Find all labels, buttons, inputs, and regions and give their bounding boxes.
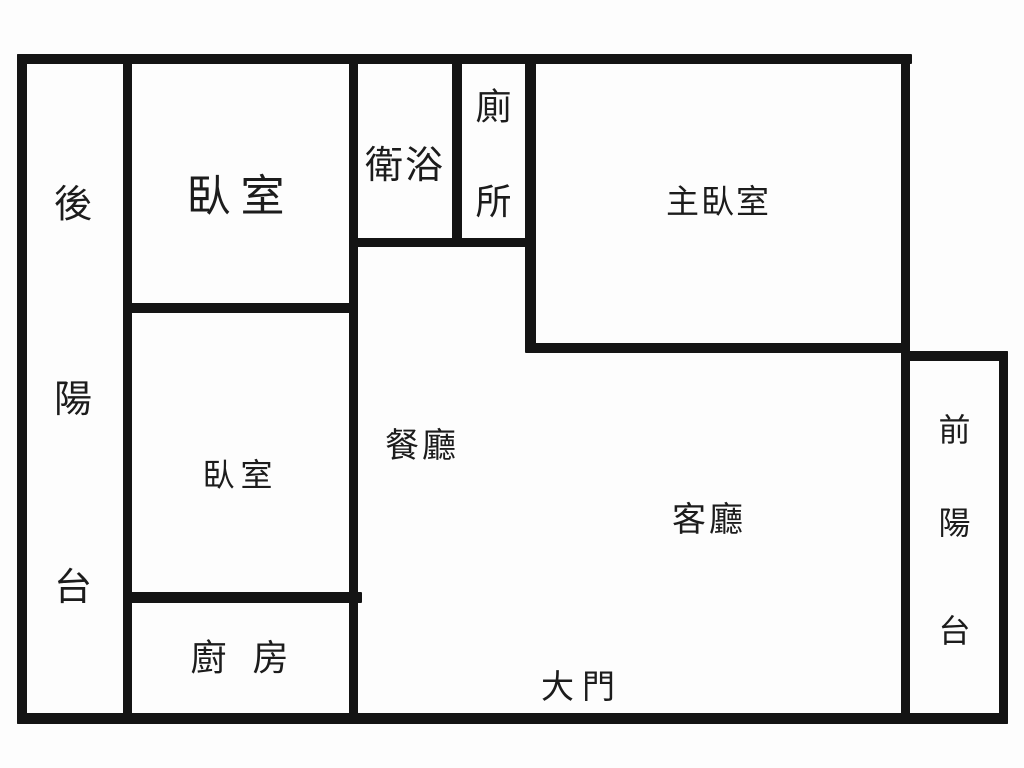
- room-label: 台: [938, 615, 970, 647]
- wall-right-main: [901, 54, 910, 724]
- wall-kitchen-top: [123, 592, 362, 603]
- room-label: 臥室: [187, 175, 295, 219]
- room-front-balcony: 前 陽 台: [910, 361, 999, 713]
- room-master-bedroom: 主臥室: [536, 64, 901, 343]
- room-label: 廚房: [190, 640, 314, 676]
- wall-bottom-outer: [17, 713, 1008, 724]
- room-rear-balcony: 後 陽 台: [27, 64, 123, 713]
- wall-bedroom1-bedroom2: [123, 303, 358, 313]
- room-bathroom: 衛浴: [358, 64, 452, 238]
- room-label: 台: [54, 569, 96, 607]
- wall-master-bottom: [527, 343, 910, 353]
- wall-central-vertical: [349, 54, 358, 724]
- wall-left-outer: [17, 54, 27, 724]
- room-bedroom1: 臥室: [132, 64, 349, 303]
- room-kitchen: 廚房: [132, 603, 349, 713]
- wall-front-balcony-right: [999, 351, 1008, 724]
- room-label: 陽: [54, 381, 96, 419]
- room-label: 衛浴: [365, 147, 445, 185]
- room-label: 所: [475, 184, 511, 220]
- room-label: 陽: [938, 507, 970, 539]
- room-bedroom2: 臥室: [132, 313, 349, 592]
- room-label: 後: [54, 186, 96, 224]
- room-toilet: 廁 所: [462, 64, 525, 238]
- wall-rear-balcony-divider: [123, 54, 132, 724]
- wall-top-outer: [17, 54, 912, 64]
- wall-master-left: [525, 54, 536, 353]
- room-label: 廁: [475, 89, 511, 125]
- room-label: 主臥室: [666, 187, 771, 220]
- room-label-dining: 餐廳: [385, 430, 459, 464]
- wall-bath-toilet-divider: [452, 54, 462, 247]
- wall-bath-toilet-bottom: [349, 238, 536, 247]
- wall-front-balcony-top: [901, 351, 1008, 361]
- floor-plan: 後 陽 台 臥室 臥室 廚房 衛浴 廁 所 主臥室 前 陽 台 餐廳 客廳 大門: [0, 0, 1024, 768]
- main-door-label: 大門: [541, 672, 623, 705]
- room-label: 前: [938, 414, 970, 446]
- room-label: 臥室: [202, 459, 278, 491]
- room-label-living: 客廳: [672, 504, 746, 538]
